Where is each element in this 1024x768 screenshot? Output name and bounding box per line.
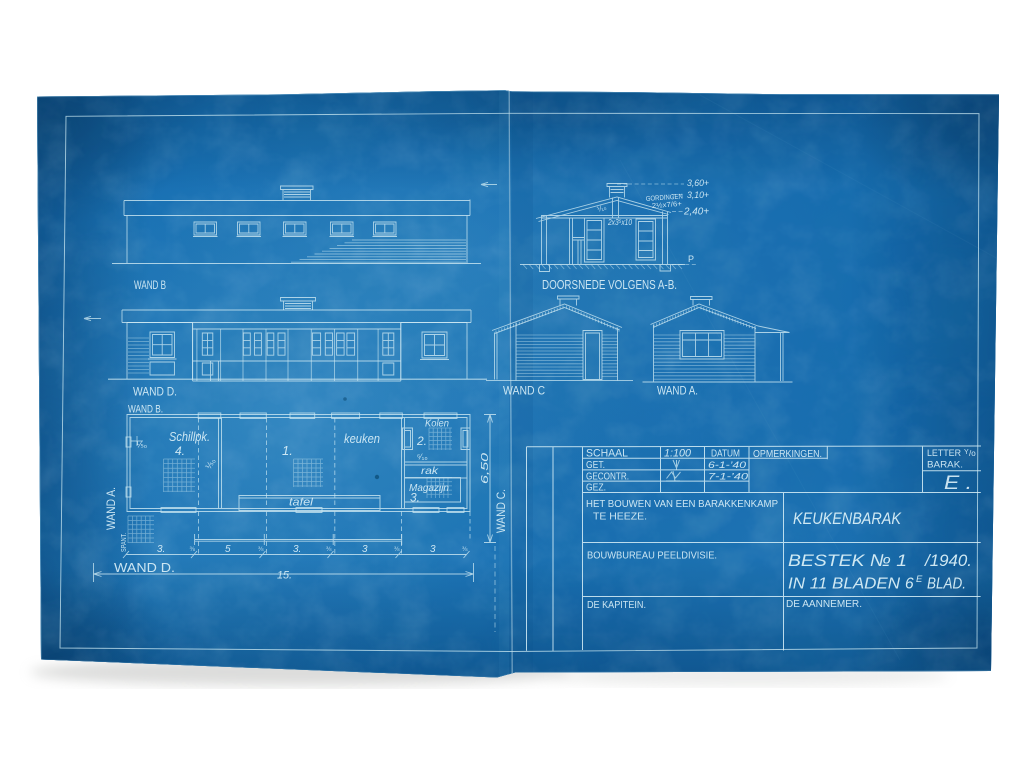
svg-text:E .: E . (944, 473, 972, 494)
svg-text:LETTER: LETTER (927, 448, 961, 459)
svg-text:GECONTR.: GECONTR. (586, 471, 629, 482)
svg-text:/o: /o (969, 449, 976, 458)
svg-text:1.: 1. (282, 443, 293, 458)
svg-text:/1940.: /1940. (924, 551, 972, 570)
svg-text:7-1-’40: 7-1-’40 (708, 472, 749, 483)
svg-text:⅕₀: ⅕₀ (136, 441, 147, 450)
svg-text:3.: 3. (410, 491, 420, 505)
svg-text:WAND A.: WAND A. (106, 487, 118, 530)
svg-text:3: 3 (430, 544, 436, 555)
svg-text:BARAK.: BARAK. (927, 460, 963, 471)
svg-text:3,60+: 3,60+ (687, 178, 709, 189)
svg-text:GEZ.: GEZ. (586, 483, 606, 494)
svg-text:P: P (688, 254, 694, 264)
svg-text:5: 5 (225, 544, 231, 555)
svg-text:2,40+: 2,40+ (683, 207, 709, 218)
svg-text:SPANT.: SPANT. (119, 533, 128, 552)
svg-text:E: E (916, 574, 923, 585)
svg-text:6-1-’40: 6-1-’40 (708, 460, 747, 471)
svg-text:3,10+: 3,10+ (687, 190, 709, 201)
svg-text:Schillpk.: Schillpk. (169, 430, 210, 444)
svg-text:3.: 3. (293, 544, 301, 555)
svg-text:DATUM: DATUM (711, 448, 740, 460)
svg-text:DE AANNEMER.: DE AANNEMER. (786, 599, 862, 610)
svg-text:BOUWBUREAU PEELDIVISIE.: BOUWBUREAU PEELDIVISIE. (587, 550, 717, 562)
svg-text:⅜: ⅜ (462, 546, 468, 553)
svg-text:2x3⁵x10: 2x3⁵x10 (607, 218, 632, 227)
svg-text:Kolen: Kolen (425, 418, 449, 430)
svg-text:OPMERKINGEN.: OPMERKINGEN. (753, 448, 822, 460)
svg-text:4.: 4. (175, 444, 185, 458)
svg-text:DOORSNEDE VOLGENS A-B.: DOORSNEDE VOLGENS A-B. (542, 277, 677, 292)
svg-text:3.: 3. (157, 544, 165, 555)
svg-text:keuken: keuken (344, 432, 380, 446)
svg-text:TE HEEZE.: TE HEEZE. (593, 511, 647, 523)
svg-text:DE KAPITEIN.: DE KAPITEIN. (587, 600, 646, 611)
svg-text:WAND A.: WAND A. (657, 386, 698, 398)
svg-text:⅜: ⅜ (190, 546, 196, 553)
svg-text:6: 6 (905, 576, 914, 593)
svg-text:3: 3 (362, 544, 368, 555)
svg-text:GET.: GET. (586, 460, 605, 471)
svg-text:IN 11 BLADEN: IN 11 BLADEN (788, 576, 901, 593)
svg-text:15.: 15. (277, 570, 292, 582)
svg-text:WAND B.: WAND B. (128, 404, 163, 416)
svg-text:BLAD.: BLAD. (927, 576, 966, 593)
svg-text:1:100: 1:100 (664, 448, 692, 460)
svg-text:rak: rak (421, 465, 439, 477)
svg-text:6,50: 6,50 (480, 452, 491, 484)
svg-text:WAND C.: WAND C. (496, 489, 508, 533)
svg-text:tafel: tafel (289, 497, 314, 509)
svg-text:⅜: ⅜ (258, 546, 264, 553)
svg-text:⅜: ⅜ (394, 546, 400, 553)
svg-text:BESTEK № 1: BESTEK № 1 (788, 551, 907, 570)
svg-text:WAND C: WAND C (503, 386, 545, 398)
svg-text:HET BOUWEN VAN EEN BARAKKENKAM: HET BOUWEN VAN EEN BARAKKENKAMP (586, 498, 778, 510)
svg-text:⁶⁄₁₀: ⁶⁄₁₀ (417, 453, 428, 462)
svg-text:WAND D.: WAND D. (133, 387, 177, 399)
svg-text:KEUKENBARAK: KEUKENBARAK (793, 510, 902, 528)
svg-text:⅜: ⅜ (326, 546, 332, 553)
svg-text:SCHAAL: SCHAAL (586, 448, 628, 460)
svg-text:2.: 2. (416, 434, 427, 448)
svg-text:WAND B: WAND B (134, 280, 166, 292)
svg-text:WAND D.: WAND D. (114, 561, 175, 575)
